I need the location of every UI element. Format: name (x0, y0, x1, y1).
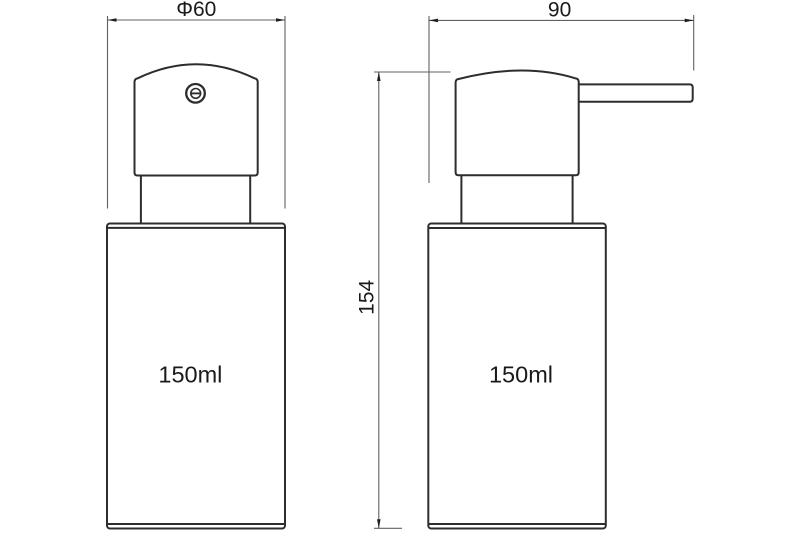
svg-text:90: 90 (548, 0, 571, 22)
svg-text:150ml: 150ml (158, 362, 222, 388)
svg-text:Φ60: Φ60 (176, 0, 216, 21)
svg-text:150ml: 150ml (489, 362, 553, 388)
svg-text:154: 154 (356, 279, 379, 314)
